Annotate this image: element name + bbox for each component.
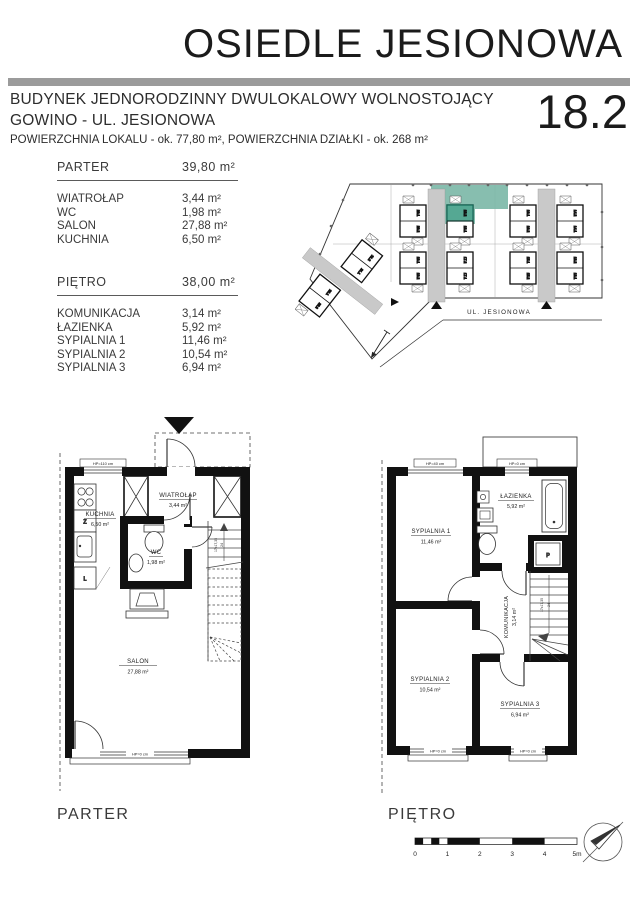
page-title: OSIEDLE JESIONOWA [183,22,623,67]
unit-label-highlighted: 18.2 [463,210,467,217]
entrance-door [167,439,195,476]
room-name: WIATROŁAP [57,193,124,205]
window-label: HP=0 cm [520,749,536,754]
location-line: GOWINO - UL. JESIONOWA [10,112,215,130]
window-kitchen-top: HP=110 cm [80,459,126,476]
legend-row: KUCHNIA 6,50 m² [57,234,238,248]
fireplace [126,589,168,618]
doors [448,571,526,686]
room-area: 27,88 m² [182,220,227,232]
washer-label: P [546,553,550,559]
street-label: UL. JESIONOWA [467,309,531,316]
bathroom-fixtures: P [477,480,566,565]
scale-tick: 2 [478,851,482,858]
room-area-wiatrolap: 3,44 m² [169,503,187,509]
building-type-line: BUDYNEK JEDNORODZINNY DWULOKALOWY WOLNOS… [10,91,494,109]
unit-label: 16.2 [526,226,530,233]
parter-caption: PARTER [57,806,129,824]
legend-pietro-rows: KOMUNIKACJA 3,14 m² ŁAZIENKA 5,92 m² SYP… [57,308,238,376]
scale-tick: 0 [413,851,417,858]
pietro-floor-plan: HP=40 cm HP=0 cm HP=0 cm HP=0 cm [378,405,637,795]
unit-label: 15.1 [526,257,530,264]
window-label: HP=110 cm [93,461,113,466]
legend-row: KOMUNIKACJA 3,14 m² [57,308,238,322]
room-label-lazienka: ŁAZIENKA [500,494,531,500]
window-s2-bottom: HP=0 cm [408,746,468,761]
legend-row: WIATROŁAP 3,44 m² [57,193,238,207]
legend-row: SYPIALNIA 3 6,94 m² [57,362,238,376]
bath-sink [477,508,493,522]
scale-tick: 3 [510,851,514,858]
scale-tick: 1 [446,851,450,858]
bath-cabinet [477,491,489,503]
scale-and-compass: 0 1 2 3 4 5m [405,815,637,885]
site-plan: UL. JESIONOWA 20.1 20.2 18.2 1 [295,162,635,392]
legend-row: WC 1,98 m² [57,207,238,221]
room-area-wc: 1,98 m² [147,560,165,566]
room-area: 3,14 m² [182,308,221,320]
legend-pietro-total: 38,00 m² [182,275,235,289]
room-area: 3,44 m² [182,193,221,205]
entrance-arrow-icon [164,417,194,434]
unit-label: 14.2 [573,210,577,217]
legend-row: SYPIALNIA 1 11,46 m² [57,335,238,349]
legend-row: SALON 27,88 m² [57,220,238,234]
toilet-tank [477,526,497,533]
kitchen-fixtures: Z L [74,484,110,589]
legend-parter-header: PARTER 39,80 m² [57,160,238,181]
room-label-wc: WC [151,550,162,556]
legend-pietro: PIĘTRO 38,00 m² KOMUNIKACJA 3,14 m² ŁAZI… [57,275,238,376]
room-name: WC [57,207,76,219]
room-area-sypialnia2: 10,54 m² [420,688,441,694]
room-area: 6,50 m² [182,234,221,246]
parter-floor-plan: HP=110 cm Z L [40,405,340,795]
room-name: KOMUNIKACJA [57,308,140,320]
unit-label: 18.1 [463,226,467,233]
entrance-canopy [155,433,250,467]
room-label-sypialnia2: SYPIALNIA 2 [411,677,450,683]
room-area: 1,98 m² [182,207,221,219]
unit-label: 20.1 [416,210,420,217]
room-area-kuchnia: 6,50 m² [91,522,109,528]
room-label-wiatrolap: WIATROŁAP [159,493,197,499]
stair-note2: 24 [547,603,551,607]
room-label-kuchnia: KUCHNIA [85,512,114,518]
unit-label: 19.2 [416,273,420,280]
road-entry-arrow [541,301,552,309]
unit-label: 13.2 [573,257,577,264]
scale-tick: 5m [572,851,581,858]
north-compass-icon [583,822,623,862]
stairs: 17x17,35 24 [530,571,568,661]
road-entry-arrow [431,301,442,309]
unit-label: 13.1 [573,273,577,280]
road-east [538,189,555,302]
highlighted-unit [447,205,473,221]
unit-label: 16.1 [526,210,530,217]
brochure-page: OSIEDLE JESIONOWA BUDYNEK JEDNORODZINNY … [0,0,637,902]
toilet-bowl [479,534,496,555]
room-label-salon: SALON [127,659,149,665]
areas-line: POWIERZCHNIA LOKALU - ok. 77,80 m², POWI… [10,134,428,146]
unit-label: 17.2 [463,257,467,264]
unit-label: 15.2 [526,273,530,280]
room-area: 10,54 m² [182,349,227,361]
room-name: ŁAZIENKA [57,322,113,334]
stair-note: 17x17,35 [540,598,544,612]
legend-row: ŁAZIENKA 5,92 m² [57,322,238,336]
room-area: 6,94 m² [182,362,221,374]
unit-label: 20.2 [416,226,420,233]
room-name: SYPIALNIA 2 [57,349,125,361]
stairs: 17x17,35 24 [206,521,243,661]
room-label-komunikacja: KOMUNIKACJA [504,596,510,638]
window-s3-bottom: HP=0 cm [509,746,547,761]
room-area-sypialnia1: 11,46 m² [421,540,442,546]
legend-pietro-header: PIĘTRO 38,00 m² [57,275,238,296]
room-label-sypialnia1: SYPIALNIA 1 [412,529,451,535]
legend-row: SYPIALNIA 2 10,54 m² [57,349,238,363]
window-label: HP=40 cm [426,461,444,466]
room-name: KUCHNIA [57,234,109,246]
unit-number: 18.2 [537,84,628,139]
unit-label: 17.1 [463,273,467,280]
room-area-komunikacja: 3,14 m² [512,608,518,626]
legend-pietro-label: PIĘTRO [57,275,107,289]
room-area-sypialnia3: 6,94 m² [511,713,529,719]
stairs-up-arrow [220,523,228,531]
room-label-sypialnia3: SYPIALNIA 3 [501,702,540,708]
room-area: 11,46 m² [182,335,227,347]
legend-parter-label: PARTER [57,160,110,174]
stair-note: 17x17,35 [214,538,218,552]
room-area-salon: 27,88 m² [128,670,149,676]
wc-sink [129,554,143,572]
scale-tick: 4 [543,851,547,858]
toilet-tank [144,525,164,532]
scale-bar: 0 1 2 3 4 5m [413,838,581,858]
window-label: HP=0 cm [509,461,525,466]
room-area-lazienka: 5,92 m² [507,504,525,510]
stove [74,484,96,510]
room-name: SYPIALNIA 3 [57,362,125,374]
legend-parter: PARTER 39,80 m² WIATROŁAP 3,44 m² WC 1,9… [57,160,238,247]
unit-label: 19.1 [416,257,420,264]
window-label: HP=0 cm [132,752,148,757]
room-area: 5,92 m² [182,322,221,334]
appliance-label-l: L [84,577,87,583]
unit-label: 14.1 [573,226,577,233]
window-s1-top: HP=40 cm [408,459,463,476]
salon-window: HP=0 cm [70,721,190,764]
stair-note2: 24 [220,543,224,547]
room-name: SALON [57,220,96,232]
window-label: HP=0 cm [430,749,446,754]
legend-parter-rows: WIATROŁAP 3,44 m² WC 1,98 m² SALON 27,88… [57,193,238,247]
road-west [428,189,445,302]
room-name: SYPIALNIA 1 [57,335,125,347]
legend-parter-total: 39,80 m² [182,160,235,174]
